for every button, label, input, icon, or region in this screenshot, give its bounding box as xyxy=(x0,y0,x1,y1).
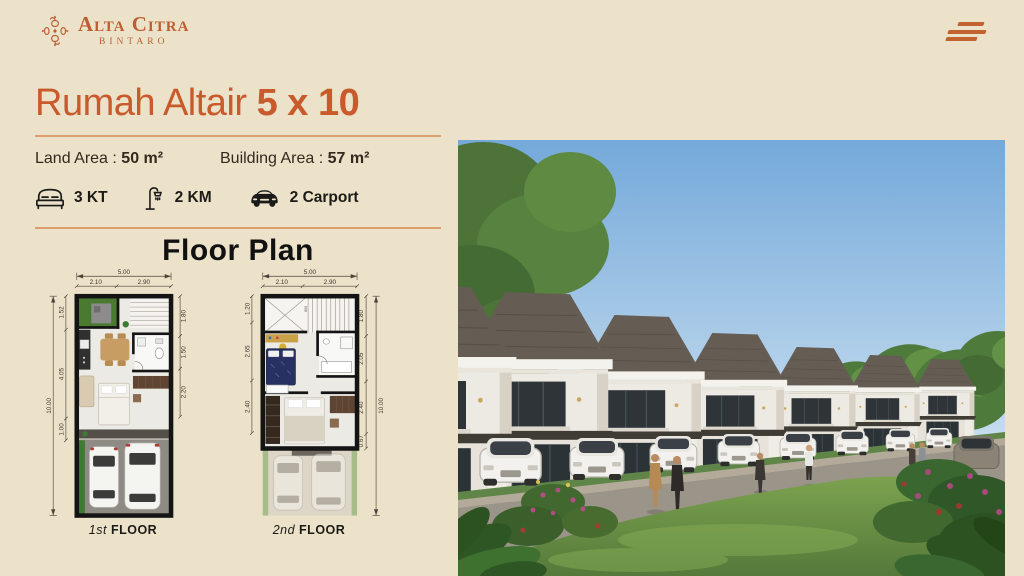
svg-text:2.90: 2.90 xyxy=(138,279,151,286)
svg-text:2.10: 2.10 xyxy=(276,279,289,286)
plan1-caption: 1st FLOOR xyxy=(89,523,157,537)
car-icon xyxy=(248,187,281,209)
title-size: 5 x 10 xyxy=(257,82,360,124)
floor-plan-1: 5.00 2.10 2.90 10.00 1.52 4.05 1.00 xyxy=(35,269,211,537)
floor-plan-2-drawing: 5.00 2.10 2.90 1.20 2.65 2.40 1.80 xyxy=(222,269,396,521)
header: Alta Citra BINTARO xyxy=(40,14,990,49)
building-area-label: Building Area : xyxy=(220,150,323,167)
feature-list: 3 KT 2 KM xyxy=(35,185,441,212)
page-title: Rumah Altair 5 x 10 xyxy=(35,84,441,124)
hero-photo xyxy=(458,140,1005,576)
svg-text:10.00: 10.00 xyxy=(378,397,385,413)
plan1-car xyxy=(125,443,160,509)
land-area-label: Land Area : xyxy=(35,150,117,167)
brand-name: Alta Citra xyxy=(78,14,189,35)
feature-bedrooms: 3 KT xyxy=(35,187,108,210)
floor-plan-1-drawing: 5.00 2.10 2.90 10.00 1.52 4.05 1.00 xyxy=(36,269,210,521)
svg-text:10.00: 10.00 xyxy=(46,397,53,413)
floor-plan-2: 5.00 2.10 2.90 1.20 2.65 2.40 1.80 xyxy=(221,269,397,537)
land-area-value: 50 m² xyxy=(121,150,163,167)
land-area: Land Area : 50 m² xyxy=(35,150,220,168)
feature-label: 2 KM xyxy=(175,189,212,207)
plan2-building: 800 xyxy=(263,296,357,515)
floor-plans: 5.00 2.10 2.90 10.00 1.52 4.05 1.00 xyxy=(35,269,441,537)
feature-bathrooms: 2 KM xyxy=(144,185,212,212)
plan1-building xyxy=(77,296,171,515)
plan1-car xyxy=(89,447,118,508)
svg-text:1.80: 1.80 xyxy=(181,309,188,322)
svg-text:2.65: 2.65 xyxy=(245,345,252,358)
menu-bar xyxy=(945,37,977,41)
building-area-value: 57 m² xyxy=(328,150,370,167)
svg-text:1.52: 1.52 xyxy=(59,306,66,319)
svg-text:2.40: 2.40 xyxy=(245,400,252,413)
svg-text:5.00: 5.00 xyxy=(118,269,131,276)
divider xyxy=(35,135,441,137)
svg-text:5.00: 5.00 xyxy=(304,269,317,276)
svg-text:1.00: 1.00 xyxy=(59,423,66,436)
svg-text:2.90: 2.90 xyxy=(324,279,337,286)
hero-photo-illustration xyxy=(458,140,1005,576)
bed-icon xyxy=(35,187,65,210)
svg-text:4.05: 4.05 xyxy=(59,367,66,380)
svg-text:1.50: 1.50 xyxy=(181,346,188,359)
menu-bar xyxy=(957,22,984,26)
svg-text:800: 800 xyxy=(304,306,308,312)
svg-text:1.20: 1.20 xyxy=(245,302,252,315)
brand-location: BINTARO xyxy=(99,38,168,48)
listing-panel: Rumah Altair 5 x 10 Land Area : 50 m² Bu… xyxy=(35,84,441,537)
menu-bar xyxy=(947,30,986,34)
feature-carport: 2 Carport xyxy=(248,187,359,209)
floral-knot-icon xyxy=(40,14,70,48)
svg-text:2.20: 2.20 xyxy=(181,386,188,399)
divider xyxy=(35,227,441,229)
svg-text:2.10: 2.10 xyxy=(90,279,103,286)
brand-logo: Alta Citra BINTARO xyxy=(40,14,189,48)
building-area: Building Area : 57 m² xyxy=(220,150,369,168)
area-specs: Land Area : 50 m² Building Area : 57 m² xyxy=(35,150,441,168)
feature-label: 3 KT xyxy=(74,189,108,207)
floor-plan-heading: Floor Plan xyxy=(35,234,441,268)
plan2-caption: 2nd FLOOR xyxy=(273,523,346,537)
hamburger-menu-icon[interactable] xyxy=(942,18,990,49)
title-name: Rumah Altair xyxy=(35,82,247,124)
feature-label: 2 Carport xyxy=(290,189,359,207)
shower-icon xyxy=(144,185,166,212)
